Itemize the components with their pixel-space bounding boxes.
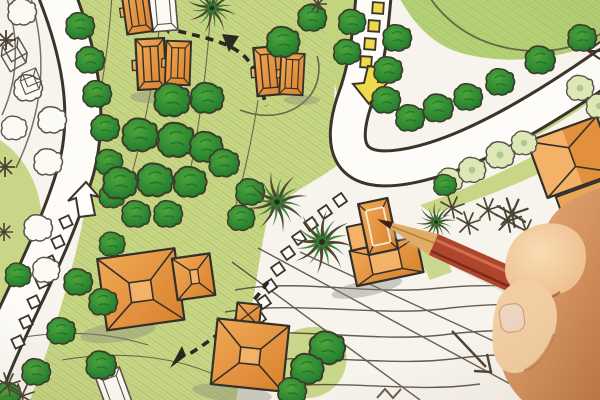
photo-vignette: [0, 0, 600, 400]
photo-of-site-plan: [0, 0, 600, 400]
site-plan-drawing: [0, 0, 600, 400]
